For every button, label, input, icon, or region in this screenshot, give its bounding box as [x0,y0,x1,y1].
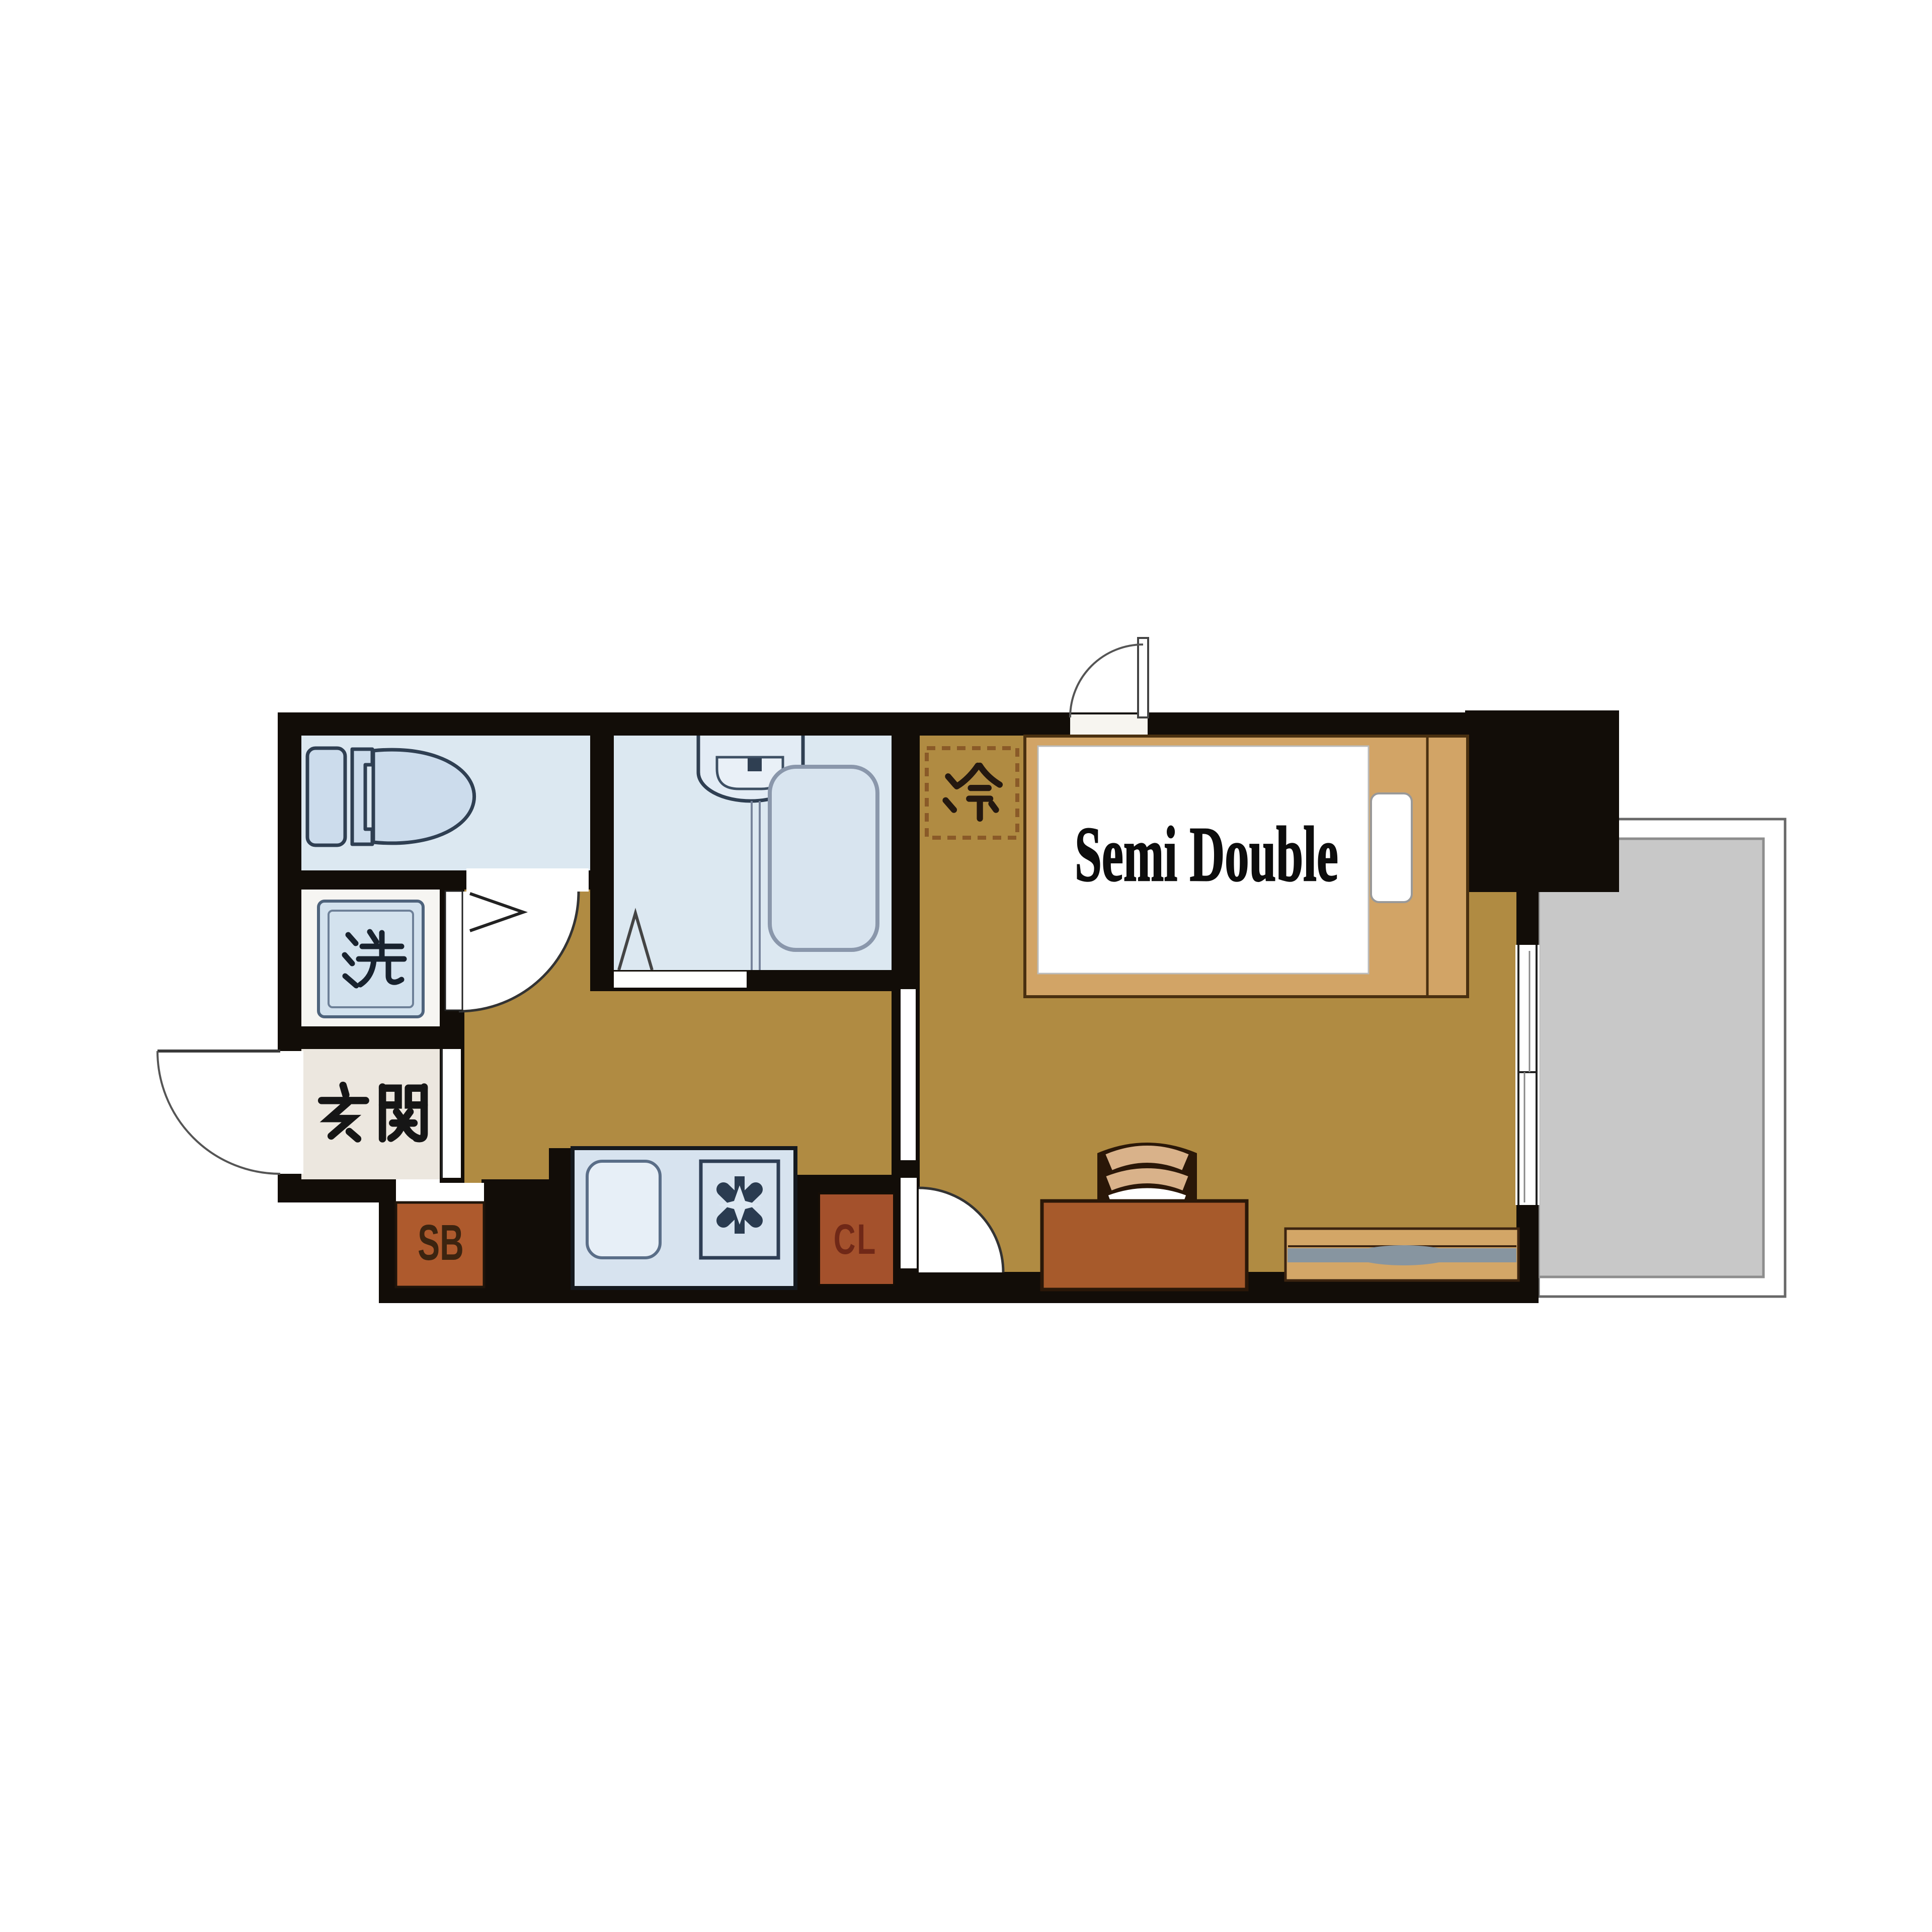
svg-text:SB: SB [418,1214,464,1270]
svg-text:CL: CL [834,1216,877,1263]
svg-text:Semi Double: Semi Double [1075,811,1338,898]
